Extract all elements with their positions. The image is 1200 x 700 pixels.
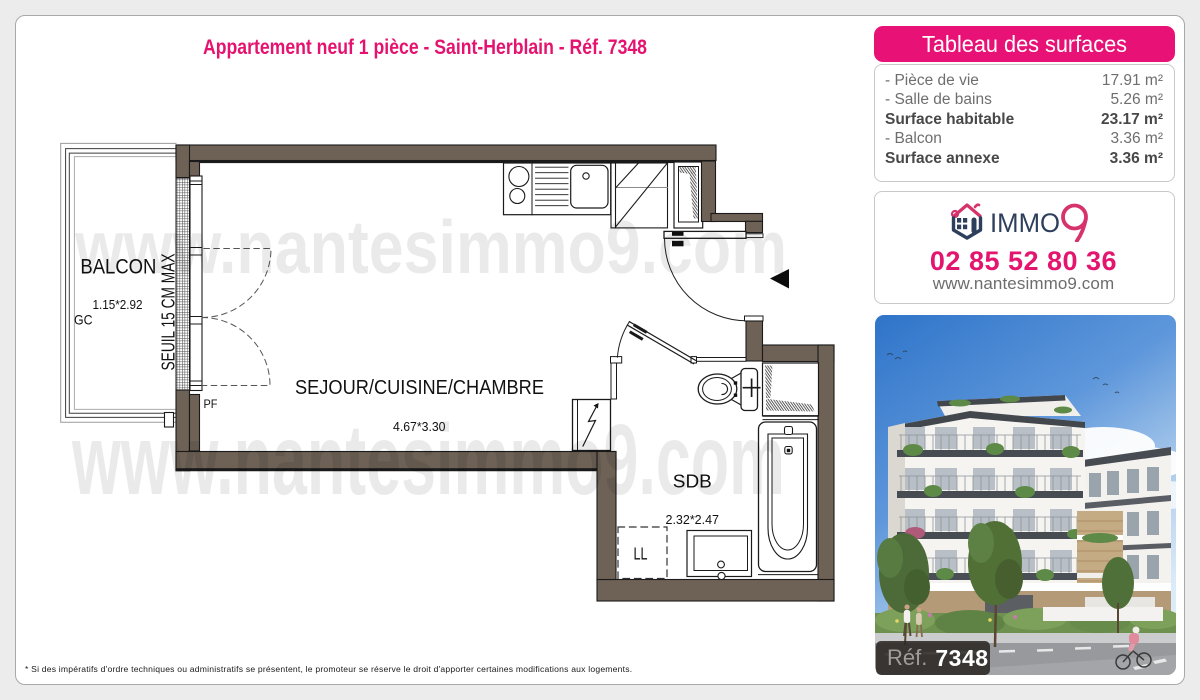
svg-text:IMMO: IMMO [990,208,1060,238]
